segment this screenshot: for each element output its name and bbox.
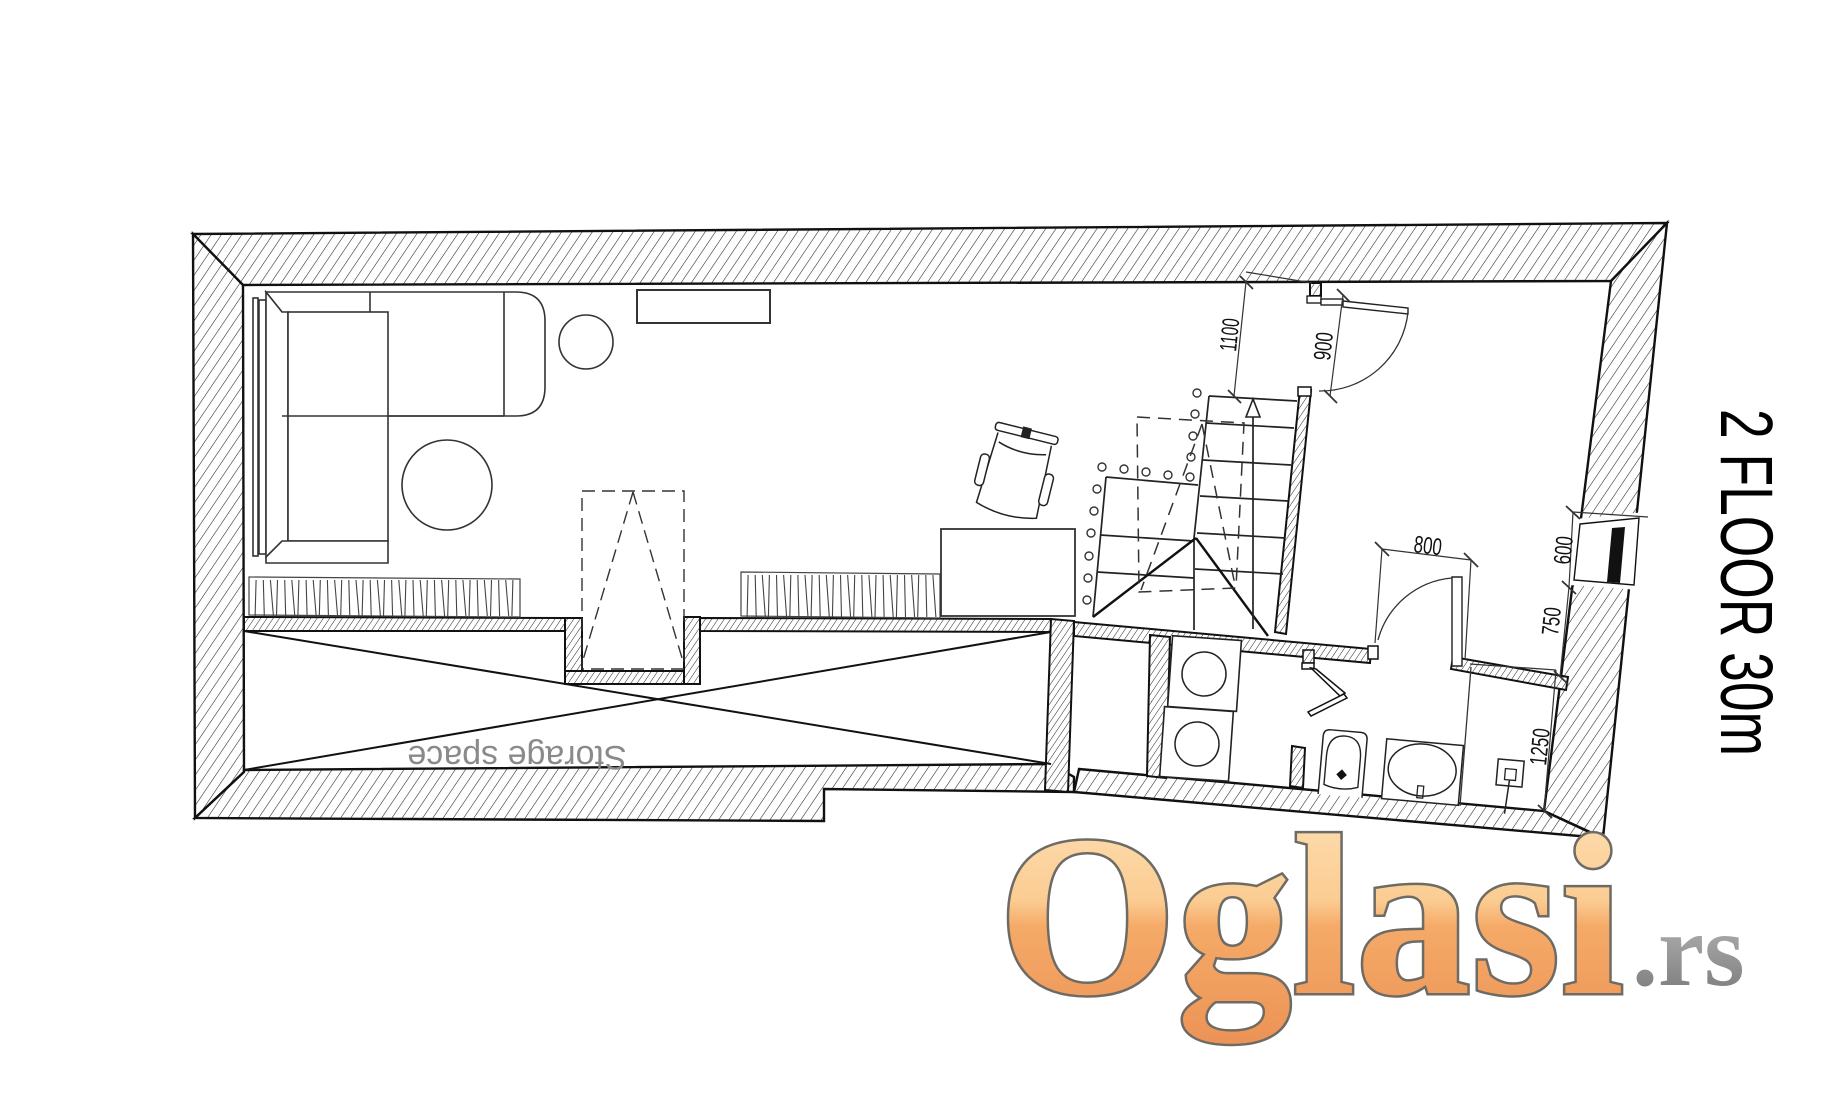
svg-text:600: 600 bbox=[1549, 535, 1579, 566]
svg-text:Storage space: Storage space bbox=[407, 738, 626, 776]
svg-text:.rs: .rs bbox=[1632, 893, 1745, 1008]
svg-text:750: 750 bbox=[1537, 606, 1567, 637]
svg-text:900: 900 bbox=[1309, 331, 1339, 362]
svg-text:2 FLOOR 30m: 2 FLOOR 30m bbox=[1705, 409, 1788, 756]
svg-text:800: 800 bbox=[1412, 531, 1443, 561]
svg-text:1100: 1100 bbox=[1215, 317, 1245, 353]
svg-text:1250: 1250 bbox=[1525, 727, 1556, 767]
svg-text:Oglasi: Oglasi bbox=[998, 788, 1624, 1044]
